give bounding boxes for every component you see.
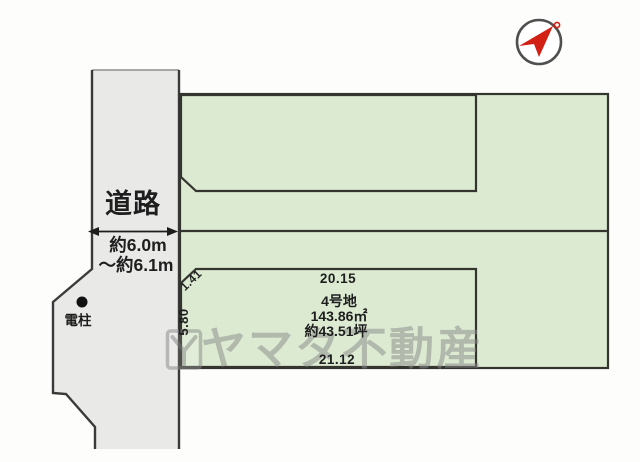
road-width-label-line1: 約6.0m [109, 235, 166, 255]
lot4-area-sqm: 143.86㎡ [311, 308, 368, 324]
road-label: 道路 [105, 188, 161, 219]
utility-pole-dot [77, 297, 88, 308]
compass-north-icon [517, 20, 561, 64]
lot4-dim-bottom: 21.12 [319, 352, 355, 367]
lot4-name: 4号地 [321, 293, 357, 309]
lot4-dim-top: 20.15 [320, 271, 356, 286]
road-width-label-line2: 〜約6.1m [99, 255, 174, 275]
land-plot-diagram: ヤマタ不動産 道路 約6.0m 〜約6.1m 電柱 20.15 4号地 143.… [0, 0, 640, 462]
utility-pole-label: 電柱 [65, 312, 92, 328]
lot4-dim-left: 5.80 [176, 308, 191, 335]
lot4-area-tsubo: 約43.51坪 [304, 323, 367, 339]
